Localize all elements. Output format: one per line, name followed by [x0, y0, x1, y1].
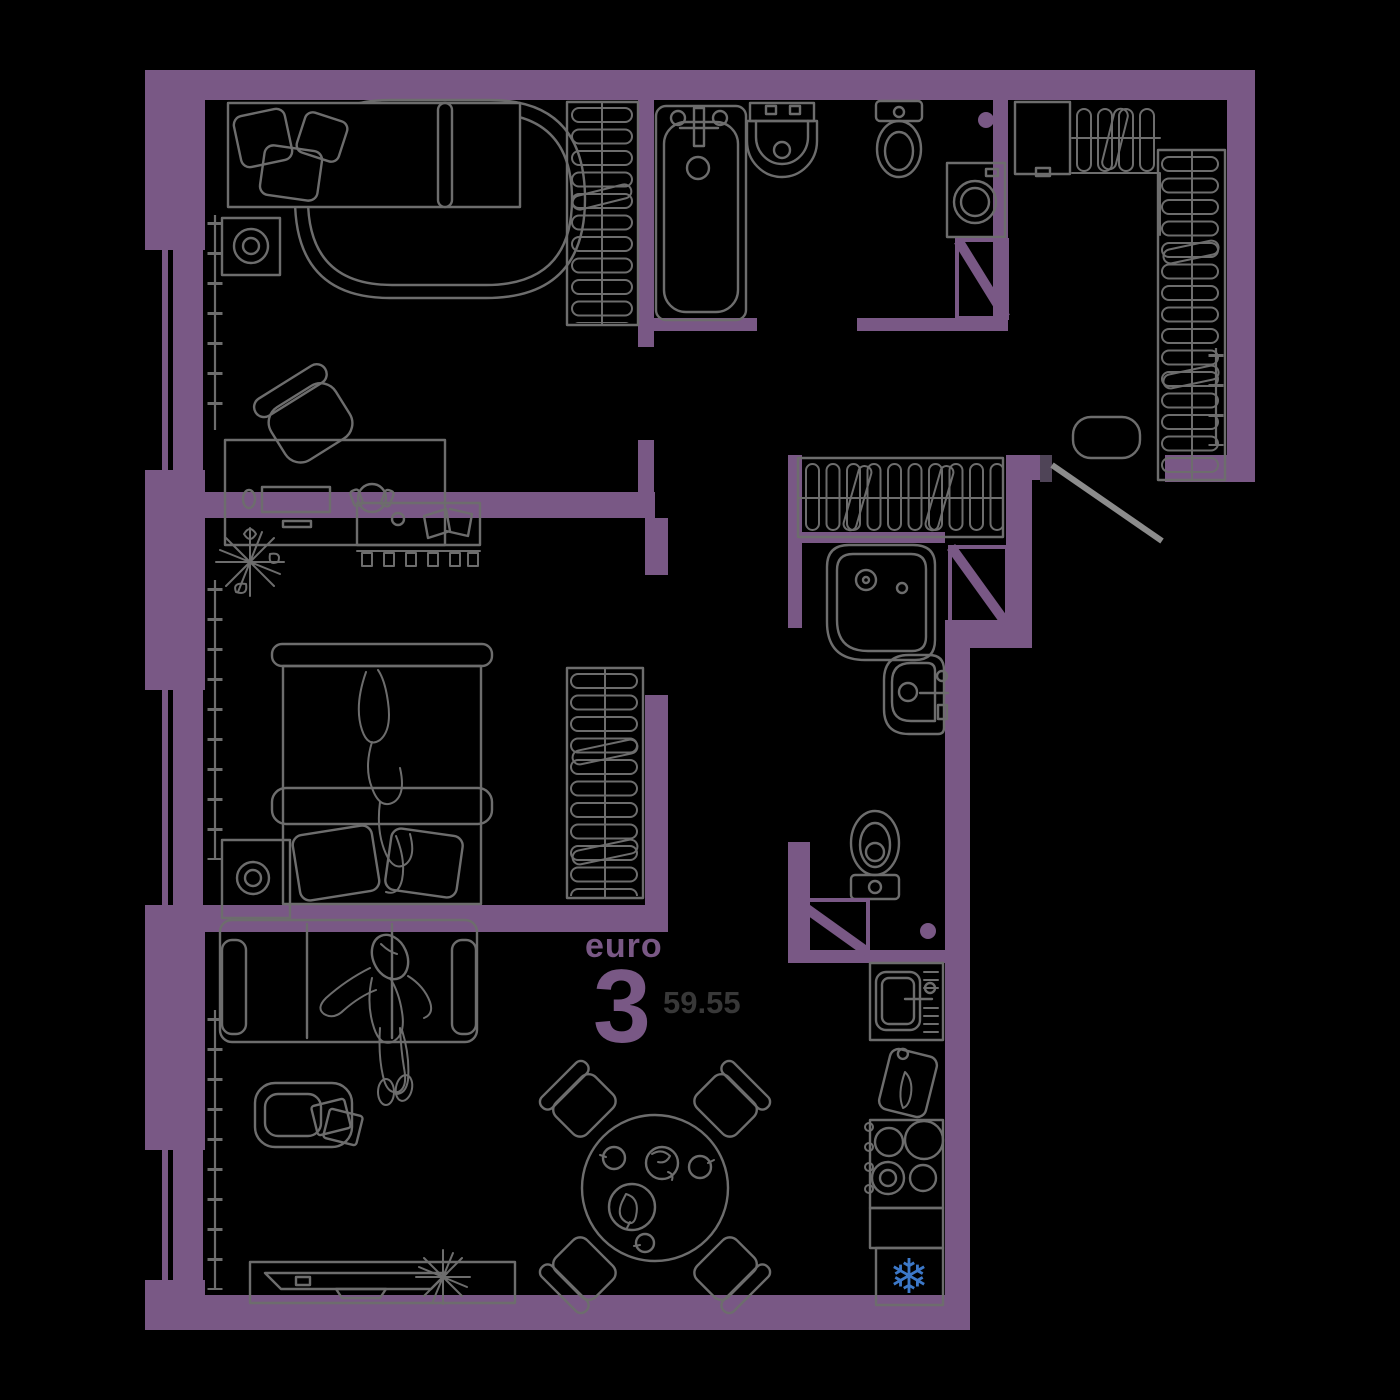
book-icon [424, 509, 472, 538]
pouf [1073, 417, 1140, 458]
kitchen-sink-icon [870, 963, 943, 1040]
cutting-board-icon [877, 1047, 939, 1119]
dining-table [582, 1115, 728, 1261]
desk-chair [250, 360, 361, 470]
door-jamb [1040, 455, 1052, 482]
nightstand [222, 218, 280, 275]
floorplan-page: ❄ euro 3 59.55 [0, 0, 1400, 1400]
counter [870, 1208, 943, 1248]
tableware [600, 1147, 714, 1252]
plan-rooms-number: 3 [593, 949, 651, 1065]
entrance [1040, 455, 1162, 541]
bedroom-2 [216, 503, 643, 918]
person-lying [359, 670, 412, 893]
cabinet [1015, 102, 1070, 174]
floorplan-canvas: ❄ euro 3 59.55 [0, 0, 1400, 1400]
coffee-table [255, 1083, 363, 1147]
bed [228, 103, 520, 207]
kitchen: ❄ [865, 963, 943, 1305]
plant-icon [216, 528, 284, 596]
closet [1015, 102, 1225, 480]
bed [272, 644, 492, 904]
pillow [291, 824, 380, 902]
plant-icon [416, 1250, 470, 1304]
hanger-rack [1158, 150, 1225, 480]
bedroom-1 [222, 100, 638, 545]
wardrobe [567, 668, 643, 898]
wc [795, 811, 936, 953]
door-dot [978, 112, 994, 128]
living-room [220, 920, 515, 1304]
hall [798, 458, 1003, 537]
sink-icon [747, 103, 817, 177]
person-sitting [320, 929, 431, 1105]
hanger-rack [1072, 107, 1160, 235]
lamp-icon [234, 229, 268, 263]
plan-label: euro 3 59.55 [585, 927, 741, 1065]
lamp-icon [237, 862, 269, 894]
bathroom [656, 101, 1007, 320]
walls [145, 70, 1255, 1330]
tv-icon [265, 1273, 447, 1289]
door-dot [920, 923, 936, 939]
toilet-icon [851, 811, 899, 899]
hall-wardrobe [798, 458, 1003, 537]
dining-area [537, 1058, 773, 1316]
snowflake-icon: ❄ [889, 1251, 929, 1304]
plan-area-value: 59.55 [663, 985, 741, 1020]
stove-icon [865, 1120, 943, 1208]
shower-icon [827, 545, 935, 660]
radiators [215, 215, 1216, 1290]
sink-icon [884, 655, 948, 734]
bed-footboard [438, 103, 452, 207]
bathtub-icon [656, 106, 746, 320]
wardrobe [567, 102, 638, 325]
entrance-door-leaf [1052, 465, 1162, 541]
shower-room-door [950, 547, 1007, 623]
toilet-icon [876, 101, 922, 177]
